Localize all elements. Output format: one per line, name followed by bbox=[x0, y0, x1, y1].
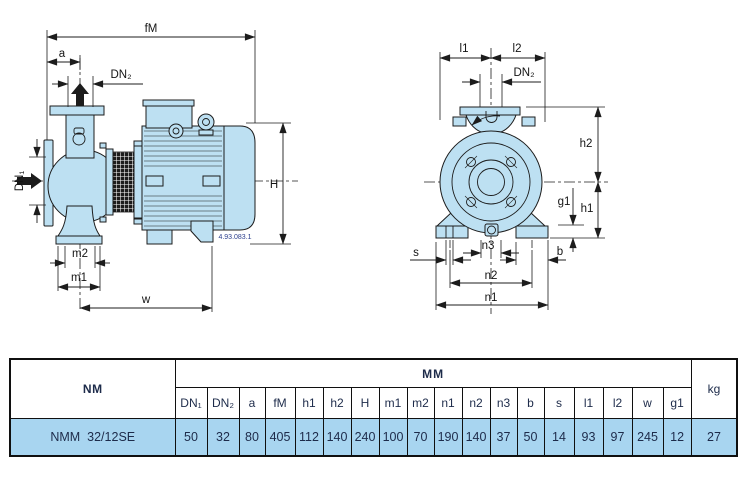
dim-label-b: b bbox=[557, 246, 563, 258]
col-header-h1: h1 bbox=[295, 388, 323, 419]
value-fM: 405 bbox=[265, 419, 295, 457]
col-header-fM: fM bbox=[265, 388, 295, 419]
front-view-drawing: l1 l2 DN₂ h2 h1 g1 s n3 b n2 n1 bbox=[410, 43, 608, 314]
dim-label-w: w bbox=[141, 294, 151, 306]
dim-label-n2: n2 bbox=[485, 270, 498, 282]
lifting-eyebolt bbox=[198, 114, 214, 130]
right-foot-pad bbox=[516, 226, 548, 238]
pump-dimension-drawings: fM a DN₂ DN₁ m2 m1 w H 4.93.083.1 bbox=[0, 0, 744, 336]
dim-label-m2: m2 bbox=[72, 248, 88, 260]
eyebolt-base bbox=[199, 130, 213, 135]
value-s: 14 bbox=[544, 419, 574, 457]
drawings-canvas: fM a DN₂ DN₁ m2 m1 w H 4.93.083.1 bbox=[0, 0, 744, 336]
col-header-n3: n3 bbox=[490, 388, 517, 419]
value-l2: 97 bbox=[603, 419, 632, 457]
col-header-g1: g1 bbox=[663, 388, 691, 419]
motor-detail bbox=[146, 176, 163, 186]
value-dn2: 32 bbox=[207, 419, 239, 457]
col-header-m1: m1 bbox=[379, 388, 407, 419]
col-header-h2: h2 bbox=[323, 388, 351, 419]
dim-label-dn2: DN₂ bbox=[513, 67, 534, 79]
col-header-dn2: DN₂ bbox=[207, 388, 239, 419]
lantern-plate bbox=[106, 149, 113, 215]
dim-label-l1: l1 bbox=[460, 43, 469, 55]
col-header-w: w bbox=[632, 388, 663, 419]
coupling-guard bbox=[113, 152, 134, 212]
table-row: NMM 32/12SE 50 32 80 405 112 140 240 100… bbox=[10, 419, 737, 457]
value-a: 80 bbox=[239, 419, 265, 457]
col-header-dn1: DN₁ bbox=[175, 388, 207, 419]
model-cell: NMM 32/12SE bbox=[10, 419, 175, 457]
motor-front-foot bbox=[147, 230, 172, 244]
motor-rear-foot bbox=[191, 221, 213, 242]
value-n1: 190 bbox=[434, 419, 462, 457]
col-header-a: a bbox=[239, 388, 265, 419]
dim-label-a: a bbox=[59, 48, 66, 60]
bolt-nub bbox=[100, 143, 106, 148]
series-header: NM bbox=[10, 359, 175, 419]
value-g1: 12 bbox=[663, 419, 691, 457]
col-header-n1: n1 bbox=[434, 388, 462, 419]
bolt-nub bbox=[100, 217, 106, 222]
drawing-number: 4.93.083.1 bbox=[218, 234, 251, 241]
dim-label-n3: n3 bbox=[482, 240, 495, 252]
terminal-box bbox=[146, 106, 192, 128]
left-lug bbox=[453, 117, 466, 126]
value-b: 50 bbox=[517, 419, 544, 457]
terminal-box-lid bbox=[143, 100, 194, 106]
cable-gland bbox=[169, 124, 183, 138]
value-h2: 140 bbox=[323, 419, 351, 457]
right-lug bbox=[522, 117, 535, 126]
discharge-flange bbox=[460, 107, 520, 115]
col-header-s: s bbox=[544, 388, 574, 419]
dim-label-h1: h1 bbox=[581, 203, 594, 215]
discharge-flange bbox=[50, 106, 104, 115]
dimensions-table: NM mm kg DN₁ DN₂ a fM h1 h2 H m1 m2 n1 n… bbox=[9, 358, 738, 457]
col-header-m2: m2 bbox=[407, 388, 434, 419]
value-w: 245 bbox=[632, 419, 663, 457]
col-header-b: b bbox=[517, 388, 544, 419]
unit-header: mm bbox=[175, 359, 691, 388]
col-header-n2: n2 bbox=[462, 388, 490, 419]
value-m2: 70 bbox=[407, 419, 434, 457]
side-view-drawing: fM a DN₂ DN₁ m2 m1 w H 4.93.083.1 bbox=[12, 23, 298, 312]
value-l1: 93 bbox=[574, 419, 603, 457]
value-n2: 140 bbox=[462, 419, 490, 457]
value-kg: 27 bbox=[691, 419, 737, 457]
outlet-flow-arrow bbox=[71, 83, 89, 106]
pump-base bbox=[56, 236, 102, 244]
dim-label-s: s bbox=[413, 247, 419, 259]
dim-label-dn2: DN₂ bbox=[110, 69, 131, 81]
motor-detail bbox=[203, 176, 220, 186]
dimensions-table-wrap: NM mm kg DN₁ DN₂ a fM h1 h2 H m1 m2 n1 n… bbox=[9, 358, 736, 457]
bolt-nub bbox=[134, 141, 142, 146]
value-n3: 37 bbox=[490, 419, 517, 457]
dim-label-m1: m1 bbox=[71, 272, 87, 284]
col-header-l1: l1 bbox=[574, 388, 603, 419]
fan-cover bbox=[224, 126, 255, 230]
dim-label-g1: g1 bbox=[558, 196, 571, 208]
casing-outline bbox=[440, 131, 542, 233]
dim-label-n1: n1 bbox=[485, 292, 498, 304]
left-foot-pad bbox=[436, 226, 468, 238]
bolt-nub bbox=[134, 219, 142, 224]
value-dn1: 50 bbox=[175, 419, 207, 457]
dim-label-fM: fM bbox=[145, 23, 158, 35]
motor-flange bbox=[134, 146, 142, 218]
dim-label-l2: l2 bbox=[513, 43, 522, 55]
value-m1: 100 bbox=[379, 419, 407, 457]
discharge-pipe bbox=[66, 114, 94, 158]
col-header-H: H bbox=[351, 388, 379, 419]
dim-label-h2: h2 bbox=[580, 138, 593, 150]
col-header-l2: l2 bbox=[603, 388, 632, 419]
value-h1: 112 bbox=[295, 419, 323, 457]
dim-label-H: H bbox=[270, 179, 278, 191]
value-H: 240 bbox=[351, 419, 379, 457]
weight-header: kg bbox=[691, 359, 737, 419]
dim-label-dn1: DN₁ bbox=[14, 171, 26, 192]
